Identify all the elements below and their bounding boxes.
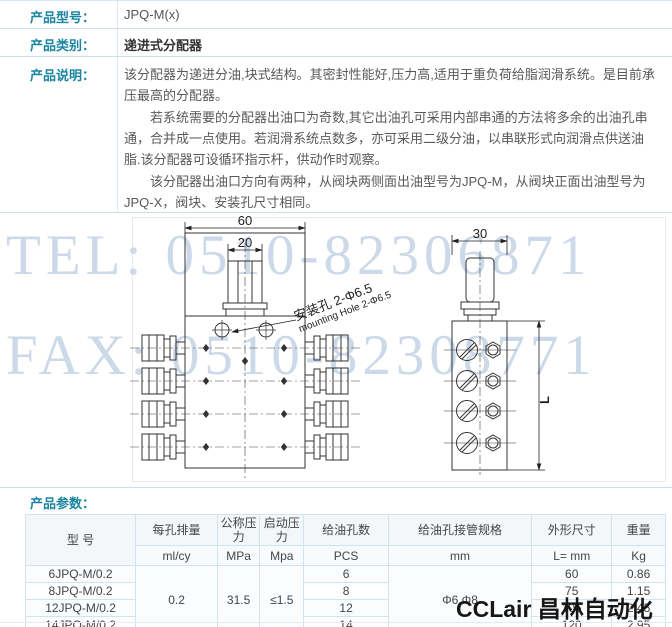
- unit-dimensions: L= mm: [532, 546, 612, 566]
- unit-oil-holes: PCS: [304, 546, 388, 566]
- product-description-row: 产品说明： 该分配器为递进分油,块式结构。其密封性能好,压力高,适用于重负荷给脂…: [0, 57, 672, 213]
- product-description-text: 该分配器为递进分油,块式结构。其密封性能好,压力高,适用于重负荷给脂润滑系统。是…: [118, 57, 672, 212]
- front-view: [130, 233, 362, 481]
- product-category-label: 产品类别：: [0, 29, 118, 56]
- col-header-displacement: 每孔排量: [136, 515, 218, 546]
- product-params-row: 产品参数：: [0, 487, 672, 514]
- cell-nominal-pressure: 31.5: [217, 566, 259, 627]
- description-paragraph-3: 该分配器出油口方向有两种，从阀块两侧面出油型号为JPQ-M，从阀块正面出油型号为…: [124, 171, 660, 213]
- cell-holes: 8: [304, 583, 388, 600]
- cell-model: 8JPQ-M/0.2: [26, 583, 136, 600]
- unit-displacement: ml/cy: [136, 546, 218, 566]
- technical-drawing-section: TEL: 0510-82306871 FAX: 0510-82308771: [0, 213, 672, 487]
- dim-60-label: 60: [238, 213, 252, 228]
- product-model-label: 产品型号：: [0, 1, 118, 28]
- col-header-dimensions: 外形尺寸: [532, 515, 612, 546]
- description-paragraph-1: 该分配器为递进分油,块式结构。其密封性能好,压力高,适用于重负荷给脂润滑系统。是…: [124, 64, 660, 106]
- product-model-value: JPQ-M(x): [118, 1, 672, 28]
- product-datasheet-page: 产品型号： JPQ-M(x) 产品类别： 递进式分配器 产品说明： 该分配器为递…: [0, 0, 672, 627]
- col-header-model: 型 号: [26, 515, 136, 566]
- dim-30-label: 30: [473, 226, 487, 241]
- cell-model: 12JPQ-M/0.2: [26, 600, 136, 617]
- unit-pipe-spec: mm: [388, 546, 531, 566]
- col-header-weight: 重量: [612, 515, 666, 546]
- cclair-brand-watermark: CCLair 昌林自动化: [456, 590, 653, 624]
- cell-length: 60: [532, 566, 612, 583]
- cell-model: 6JPQ-M/0.2: [26, 566, 136, 583]
- dim-20-label: 20: [238, 235, 252, 250]
- description-paragraph-2: 若系统需要的分配器出油口为奇数,其它出油孔可采用内部串通的方法将多余的出油孔串通…: [124, 107, 660, 170]
- col-header-nominal-pressure: 公称压力: [217, 515, 259, 546]
- product-category-value: 递进式分配器: [118, 29, 672, 56]
- side-view: [444, 251, 516, 475]
- unit-start-pressure: Mpa: [260, 546, 304, 566]
- product-description-label: 产品说明：: [0, 57, 118, 212]
- cell-start-pressure: ≤1.5: [260, 566, 304, 627]
- unit-nominal-pressure: MPa: [217, 546, 259, 566]
- col-header-oil-holes: 给油孔数: [304, 515, 388, 546]
- col-header-pipe-spec: 给油孔接管规格: [388, 515, 531, 546]
- cell-weight: 0.86: [612, 566, 666, 583]
- unit-weight: Kg: [612, 546, 666, 566]
- product-params-label: 产品参数：: [0, 488, 672, 512]
- product-category-row: 产品类别： 递进式分配器: [0, 29, 672, 57]
- cell-holes: 12: [304, 600, 388, 617]
- table-row: 6JPQ-M/0.2 0.2 31.5 ≤1.5 6 Φ6 Φ8 60 0.86: [26, 566, 666, 583]
- col-header-start-pressure: 启动压力: [260, 515, 304, 546]
- distributor-technical-drawing: 60 20 安装孔 2-Φ6.5 mounting Hole 2-Φ6.5: [0, 213, 672, 487]
- product-model-row: 产品型号： JPQ-M(x): [0, 0, 672, 29]
- cell-displacement: 0.2: [136, 566, 218, 627]
- cell-holes: 6: [304, 566, 388, 583]
- dim-L-label: L: [537, 396, 552, 404]
